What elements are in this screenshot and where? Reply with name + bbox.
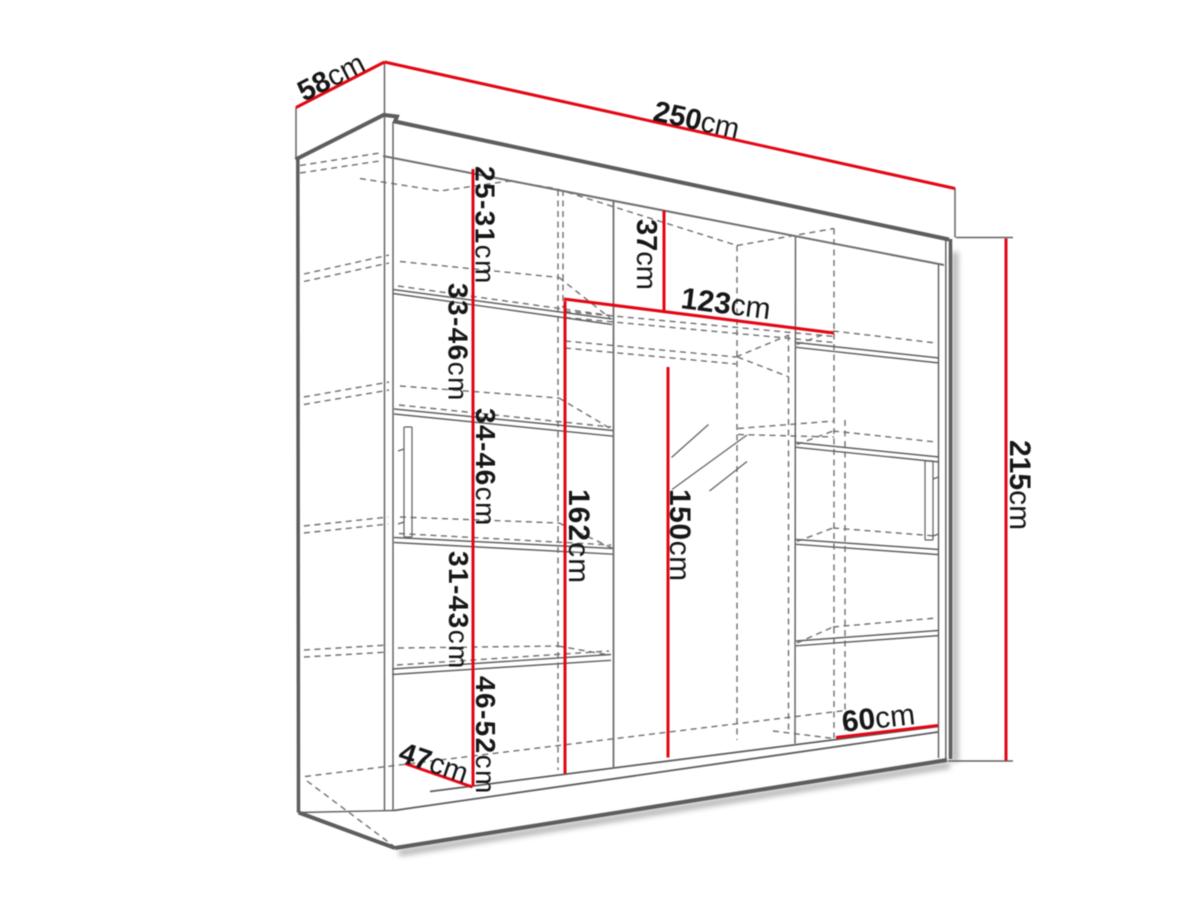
svg-text:46-52cm: 46-52cm bbox=[470, 676, 501, 795]
svg-text:162cm: 162cm bbox=[562, 489, 595, 584]
svg-text:33-46cm: 33-46cm bbox=[443, 283, 474, 402]
svg-text:150cm: 150cm bbox=[663, 489, 696, 582]
svg-text:31-43cm: 31-43cm bbox=[443, 551, 474, 670]
svg-text:25-31cm: 25-31cm bbox=[470, 166, 501, 285]
svg-text:34-46cm: 34-46cm bbox=[470, 408, 501, 527]
svg-text:37cm: 37cm bbox=[630, 219, 662, 290]
svg-text:215cm: 215cm bbox=[1003, 440, 1036, 530]
